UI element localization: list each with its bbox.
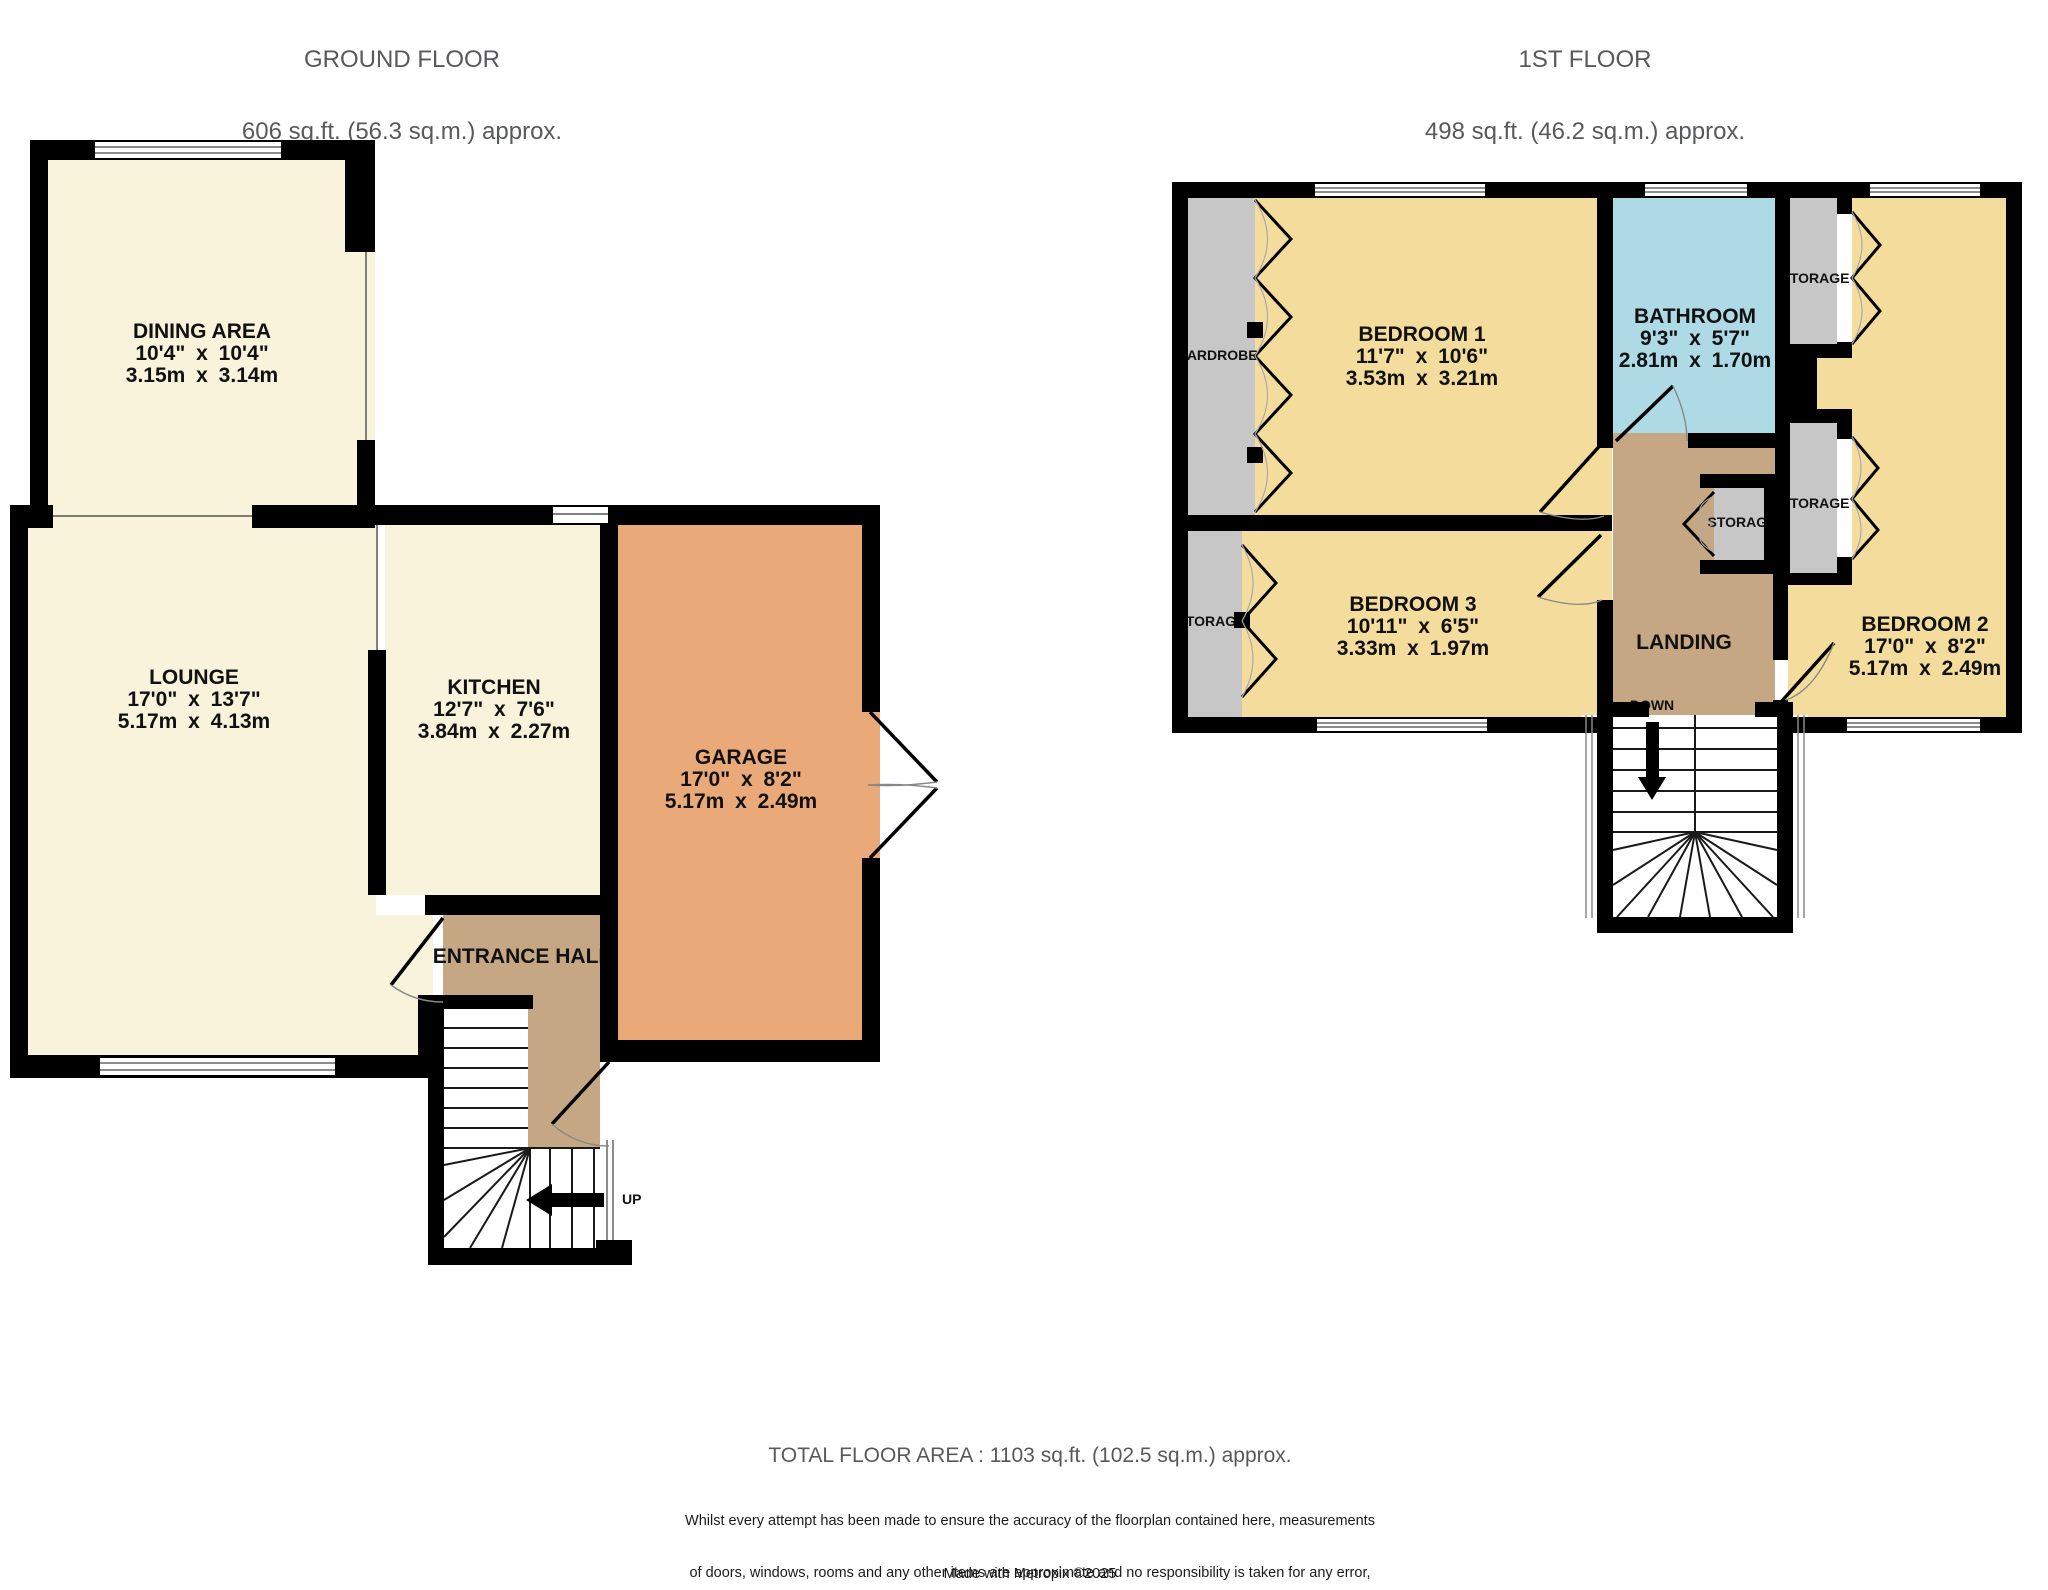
bathroom-dim-imperial: 9'3" x 5'7": [1640, 327, 1750, 350]
bedroom1-dim-imperial: 11'7" x 10'6": [1356, 345, 1488, 368]
stairs-ground-left-flight: [444, 1005, 528, 1148]
storage-mid-label: STORAGE: [1781, 495, 1850, 511]
garage-dim-metric: 5.17m x 2.49m: [665, 790, 817, 813]
bedroom2-dim-metric: 5.17m x 2.49m: [1849, 657, 2001, 680]
window-lounge-bottom: [100, 1058, 335, 1075]
lounge-dim-imperial: 17'0" x 13'7": [127, 688, 260, 711]
lounge-label: LOUNGE: [149, 666, 239, 689]
window-bedroom1-top: [1315, 184, 1485, 196]
bedroom2-room-notch: [1817, 358, 1852, 409]
bedroom2-room-extension: [1788, 585, 1852, 717]
window-front-sidelight: [602, 1140, 618, 1240]
floorplan-canvas: DINING AREA 10'4" x 10'4" 3.15m x 3.14m …: [0, 0, 2048, 1590]
bathroom-dim-metric: 2.81m x 1.70m: [1619, 349, 1771, 372]
floorplan-page: GROUND FLOOR 606 sq.ft. (56.3 sq.m.) app…: [0, 0, 2048, 1590]
landing-label: LANDING: [1636, 631, 1732, 654]
total-floor-area: TOTAL FLOOR AREA : 1103 sq.ft. (102.5 sq…: [768, 1444, 1291, 1468]
kitchen-dim-metric: 3.84m x 2.27m: [418, 720, 570, 743]
entrance-hall-label: ENTRANCE HALL: [433, 945, 612, 968]
stairs-side-strip-right: [1793, 715, 1808, 920]
dining-dim-imperial: 10'4" x 10'4": [135, 342, 268, 365]
bedroom3-dim-imperial: 10'11" x 6'5": [1347, 615, 1479, 638]
kitchen-dim-imperial: 12'7" x 7'6": [433, 698, 555, 721]
bedroom2-label: BEDROOM 2: [1861, 613, 1988, 636]
garage-label: GARAGE: [695, 746, 787, 769]
bedroom3-label: BEDROOM 3: [1349, 593, 1476, 616]
window-bedroom2-bottom: [1847, 719, 1980, 731]
dining-dim-metric: 3.15m x 3.14m: [126, 364, 278, 387]
bathroom-label: BATHROOM: [1634, 305, 1756, 328]
garage-dim-imperial: 17'0" x 8'2": [680, 768, 802, 791]
metropix-credit: Made with Metropix ©2025: [944, 1566, 1117, 1582]
disclaimer-line: Whilst every attempt has been made to en…: [681, 1513, 1379, 1530]
bedroom1-dim-metric: 3.53m x 3.21m: [1346, 367, 1498, 390]
storage-top-label: STORAGE: [1781, 270, 1850, 286]
window-bedroom3-bottom: [1317, 719, 1487, 731]
lounge-dim-metric: 5.17m x 4.13m: [118, 710, 270, 733]
window-dining-top: [95, 142, 281, 158]
window-bathroom-top: [1645, 184, 1747, 196]
window-bedroom2-top: [1870, 184, 1980, 196]
kitchen-label: KITCHEN: [447, 676, 540, 699]
up-label: UP: [622, 1191, 641, 1207]
bedroom2-dim-imperial: 17'0" x 8'2": [1864, 635, 1986, 658]
stairs-side-strip-left: [1582, 715, 1597, 920]
bedroom1-label: BEDROOM 1: [1358, 323, 1486, 346]
bedroom3-dim-metric: 3.33m x 1.97m: [1337, 637, 1489, 660]
dining-label: DINING AREA: [133, 320, 271, 343]
